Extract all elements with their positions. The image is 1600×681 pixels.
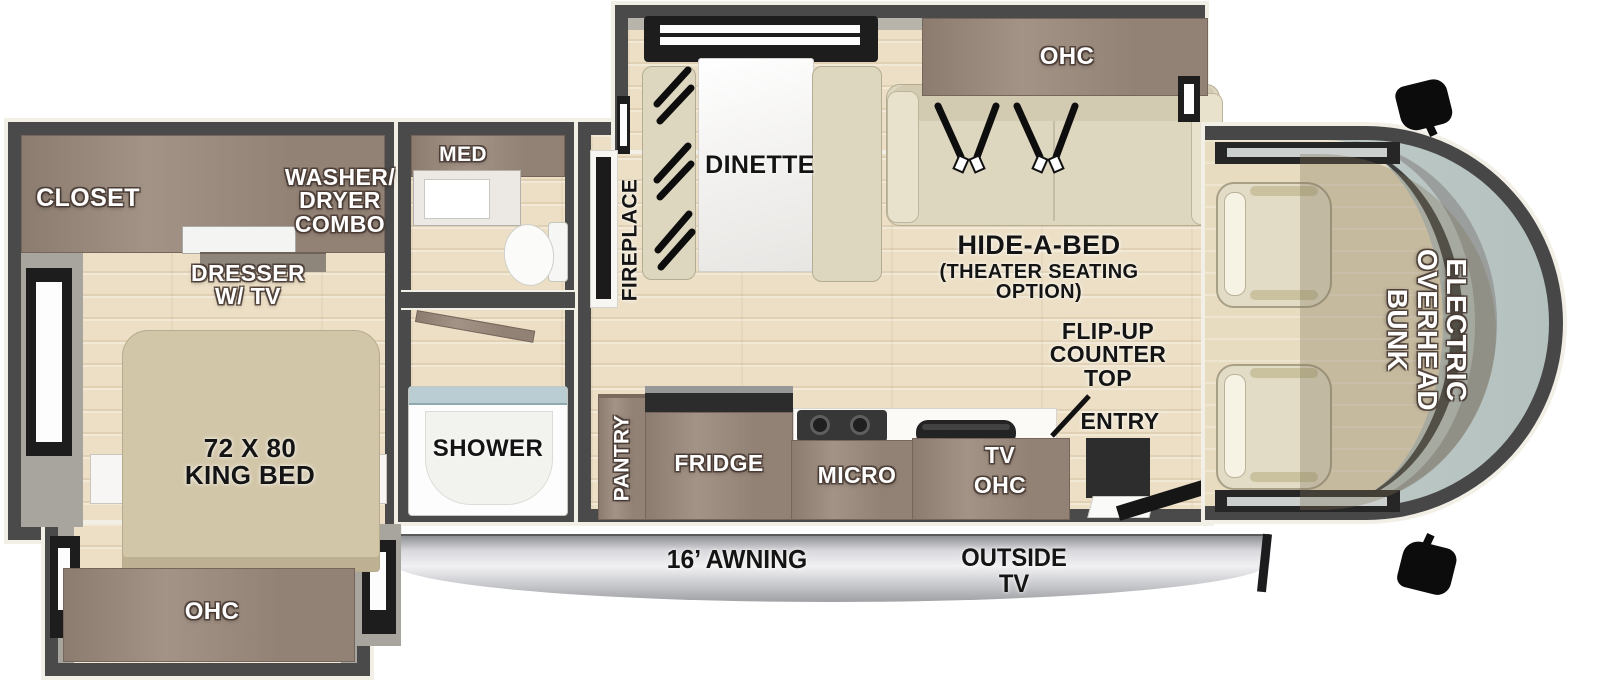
fridge-top-trim (645, 386, 793, 393)
hide-a-bed-sofa (886, 84, 1220, 226)
pantry-label: PANTRY (611, 415, 632, 501)
living-ohc-label: OHC (1040, 45, 1095, 69)
microwave-label: MICRO (818, 464, 897, 487)
bedroom-ohc-label: OHC (185, 600, 240, 624)
fireplace (590, 150, 618, 308)
tv-ohc-label: TV OHC (974, 441, 1026, 501)
slideout-window-right (1178, 76, 1200, 122)
slideout-window-left (617, 96, 630, 154)
stove (797, 410, 887, 442)
chair-backrest (1224, 374, 1246, 478)
window-pane (660, 37, 860, 45)
dinette-window (644, 16, 878, 62)
fridge-label: FRIDGE (674, 452, 763, 475)
fireplace-label: FIREPLACE (619, 179, 640, 302)
tv-screen-glare (922, 424, 1010, 430)
fridge-top (645, 386, 793, 412)
nightstand-left (90, 454, 124, 504)
stove-burner (850, 415, 870, 435)
shower-label: SHOWER (433, 437, 543, 461)
window-pane (660, 25, 860, 33)
hide-a-bed-sub-label: (THEATER SEATING OPTION) (940, 262, 1139, 303)
shower-glass (409, 387, 567, 405)
hide-a-bed-label: HIDE-A-BED (958, 232, 1121, 260)
entry-door-mat (1086, 438, 1150, 498)
fireplace-insert (596, 157, 611, 299)
washer-dryer-label: WASHER/ DRYER COMBO (285, 166, 395, 236)
bathroom-divider-wall (401, 292, 575, 308)
bedroom-window (26, 268, 72, 456)
awning-label: 16’ AWNING (667, 546, 807, 573)
window-pane (620, 104, 627, 146)
med-cabinet-label: MED (439, 144, 487, 165)
washer-dryer-unit (182, 226, 296, 254)
window-pane (1184, 84, 1194, 114)
awning-band (392, 534, 1270, 602)
window-pane (36, 282, 62, 442)
chair-backrest (1224, 192, 1246, 296)
bathroom-sink (413, 170, 521, 226)
overhead-bunk-label: ELECTRIC OVERHEAD BUNK (1383, 249, 1471, 411)
flip-up-counter-label: FLIP-UP COUNTER TOP (1050, 320, 1167, 390)
dinette-bench-right (812, 66, 882, 282)
entry-label: ENTRY (1080, 410, 1159, 433)
closet-label: CLOSET (36, 186, 140, 212)
sofa-seat-split (1053, 121, 1055, 221)
sink-basin (424, 179, 490, 219)
rv-floorplan: CLOSET WASHER/ DRYER COMBO DRESSER W/ TV… (0, 0, 1600, 681)
dresser-label: DRESSER W/ TV (191, 262, 305, 309)
stove-burner (810, 415, 830, 435)
sofa-arm-left (887, 91, 919, 223)
dinette-label: DINETTE (705, 153, 815, 179)
dinette-bench-left (642, 66, 696, 280)
outside-tv-label: OUTSIDE TV (961, 546, 1067, 597)
king-bed-label: 72 X 80 KING BED (185, 435, 315, 488)
